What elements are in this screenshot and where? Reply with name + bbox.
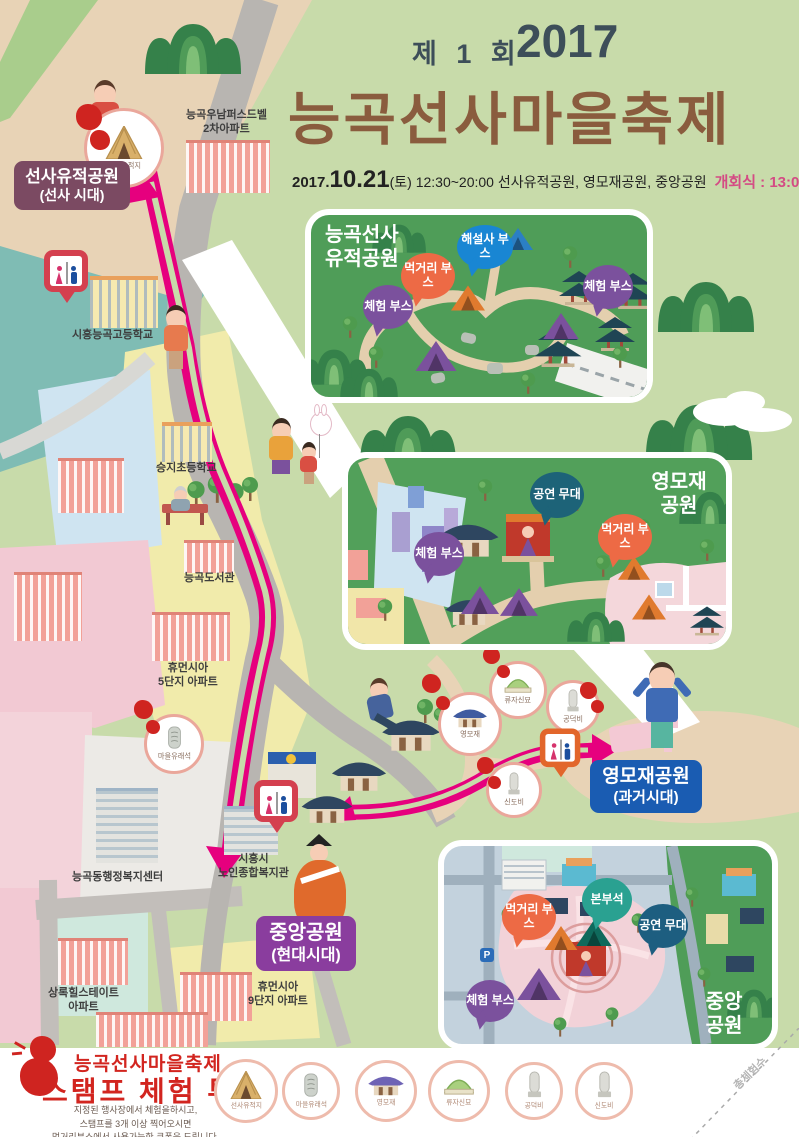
stele-icon xyxy=(525,1071,544,1099)
stamp-mark xyxy=(580,682,597,699)
hut-icon xyxy=(105,126,143,159)
hanok-icon xyxy=(367,1075,405,1096)
bubble-food-booth: 먹거리 부스 xyxy=(401,253,455,299)
hanok-icon xyxy=(452,708,488,728)
tour-stamp-sindobi: 신도비 xyxy=(575,1062,633,1120)
apartment-hillstate xyxy=(58,938,128,985)
police-badge-icon xyxy=(286,754,296,764)
stone-icon xyxy=(302,1073,320,1098)
bubble-stage: 공연 무대 xyxy=(638,904,688,948)
fold-corner: 총체험수 xyxy=(660,1028,799,1137)
label-apartment-human9: 휴먼시아 9단지 아파트 xyxy=(248,980,308,1009)
old-man-on-bench xyxy=(162,490,210,526)
stamp-mark xyxy=(497,665,510,678)
stele-icon xyxy=(565,689,581,713)
stamp-mark xyxy=(436,696,450,710)
apartment-human5 xyxy=(152,612,230,661)
bubble-hq-seat: 본부석 xyxy=(582,878,632,922)
library-building xyxy=(184,540,234,573)
badge-central-park: 중앙공원 (현대시대) xyxy=(256,916,356,971)
label-apartment-human5: 휴먼시아 5단지 아파트 xyxy=(158,661,218,690)
stone-icon xyxy=(166,726,183,750)
total-count-note: 총체험수 xyxy=(730,1054,769,1092)
parking-icon: P xyxy=(480,948,494,962)
toilet-pin xyxy=(540,728,582,785)
cheering-boy-character xyxy=(636,658,692,758)
bubble-food-booth: 먹거리 부스 xyxy=(502,894,556,940)
stamp-tour-strip: 능곡선사마을축제 스탬프 체험 투어 지정된 행사장에서 체험을하시고, 스탬프… xyxy=(0,1048,799,1137)
stamp-mark xyxy=(477,757,494,774)
waving-girl-character xyxy=(160,305,194,371)
label-highschool: 시흥능곡고등학교 xyxy=(72,328,153,342)
running-man-character xyxy=(366,678,412,748)
stamp-mark xyxy=(591,700,604,713)
hut-icon xyxy=(230,1071,262,1099)
bubble-experience-booth: 체험 부스 xyxy=(363,285,413,329)
schedule-line: 2017.10.21(토) 12:30~20:00 선사유적공원, 영모재공원,… xyxy=(292,166,799,194)
stamp-spot-sindobi: 신도비 xyxy=(486,762,542,818)
inset-title-neunggok: 능곡선사 유적공원 xyxy=(325,223,399,271)
year-label: 2017 xyxy=(516,14,618,68)
label-elementary: 승지초등학교 xyxy=(156,461,217,475)
inset-title-yeongmojae: 영모재 공원 xyxy=(644,470,714,518)
tour-stamp-yeongmojae: 영모재 xyxy=(355,1060,417,1122)
inset-central-park: P 중앙 공원 먹거리 부스 본부석 공연 무대 체험 부스 xyxy=(438,840,778,1050)
stamp-mark xyxy=(90,130,110,150)
rabbit-balloon xyxy=(308,412,332,458)
male-icon xyxy=(281,796,287,814)
stamp-mark xyxy=(488,776,501,789)
badge-prehistoric-park: 선사유적공원 (선사 시대) xyxy=(14,161,130,210)
label-apartment-unam: 능곡우남퍼스드벨 2차아파트 xyxy=(186,108,267,137)
inset-yeongmojae-park: 영모재 공원 공연 무대 체험 부스 먹거리 부스 xyxy=(342,452,732,650)
apartment-blueblock xyxy=(58,458,124,513)
stamp-mark xyxy=(134,700,153,719)
male-icon xyxy=(71,266,77,284)
label-community-center: 능곡동행정복지센터 xyxy=(72,870,163,884)
inset-neunggok-prehistoric-park: 능곡선사 유적공원 해설사 부스 먹거리 부스 체험 부스 체험 부스 xyxy=(305,209,653,403)
female-icon xyxy=(550,743,556,760)
female-icon xyxy=(266,796,273,814)
male-icon xyxy=(564,743,570,760)
toilet-pin xyxy=(254,780,300,842)
highschool-building xyxy=(90,276,158,328)
stamp-mark xyxy=(422,674,441,693)
tour-stamp-village-stone: 마을유래석 xyxy=(282,1062,340,1120)
female-icon xyxy=(56,266,63,284)
stele-icon xyxy=(506,772,522,796)
tour-stamp-prehistoric-site: 선사유적지 xyxy=(214,1059,278,1123)
tour-stamp-ryujasin-tomb: 류자신묘 xyxy=(428,1060,490,1122)
badge-yeongmojae-park: 영모재공원 (과거시대) xyxy=(590,760,702,813)
poster-title: 능곡선사마을축제 xyxy=(288,74,732,156)
stamp-mark xyxy=(76,104,102,130)
apartment-bottom xyxy=(96,1012,208,1047)
tour-stamp-gongdeokbi: 공덕비 xyxy=(505,1062,563,1120)
apartment-unam xyxy=(186,140,270,193)
tomb-mound-icon xyxy=(503,675,533,694)
bubble-experience-booth: 체험 부스 xyxy=(466,980,514,1022)
tomb-mound-icon xyxy=(442,1075,476,1096)
bubble-guide-booth: 해설사 부스 xyxy=(457,225,513,269)
label-senior-center: 시흥시 노인종합복지관 xyxy=(218,852,289,881)
bubble-food-booth: 먹거리 부스 xyxy=(598,514,652,560)
bubble-stage: 공연 무대 xyxy=(530,472,584,518)
toilet-pin xyxy=(44,250,90,312)
elementary-building xyxy=(162,422,212,462)
stele-icon xyxy=(595,1071,614,1099)
community-center-building xyxy=(96,788,158,863)
bubble-experience-booth: 체험 부스 xyxy=(583,265,633,309)
opening-ceremony-note: 개회식 : 13:00(중앙공원) xyxy=(715,174,799,191)
apartment-pinkblock xyxy=(14,572,82,641)
tour-description: 지정된 행사장에서 체험을하시고, 스탬프를 3개 이상 찍어오시면 먹거리부스… xyxy=(18,1104,253,1137)
stamp-mark xyxy=(146,720,160,734)
label-library: 능곡도서관 xyxy=(184,571,235,585)
bubble-experience-booth: 체험 부스 xyxy=(414,532,464,576)
festival-map-poster: 선사유적지 마을유래석 영모재 류자신묘 공덕비 신도비 선사유적공원 (선사 … xyxy=(0,0,799,1137)
label-apartment-hillstate: 상록힐스테이트 아파트 xyxy=(48,986,119,1015)
edition-label: 제 1 회 xyxy=(412,32,522,71)
